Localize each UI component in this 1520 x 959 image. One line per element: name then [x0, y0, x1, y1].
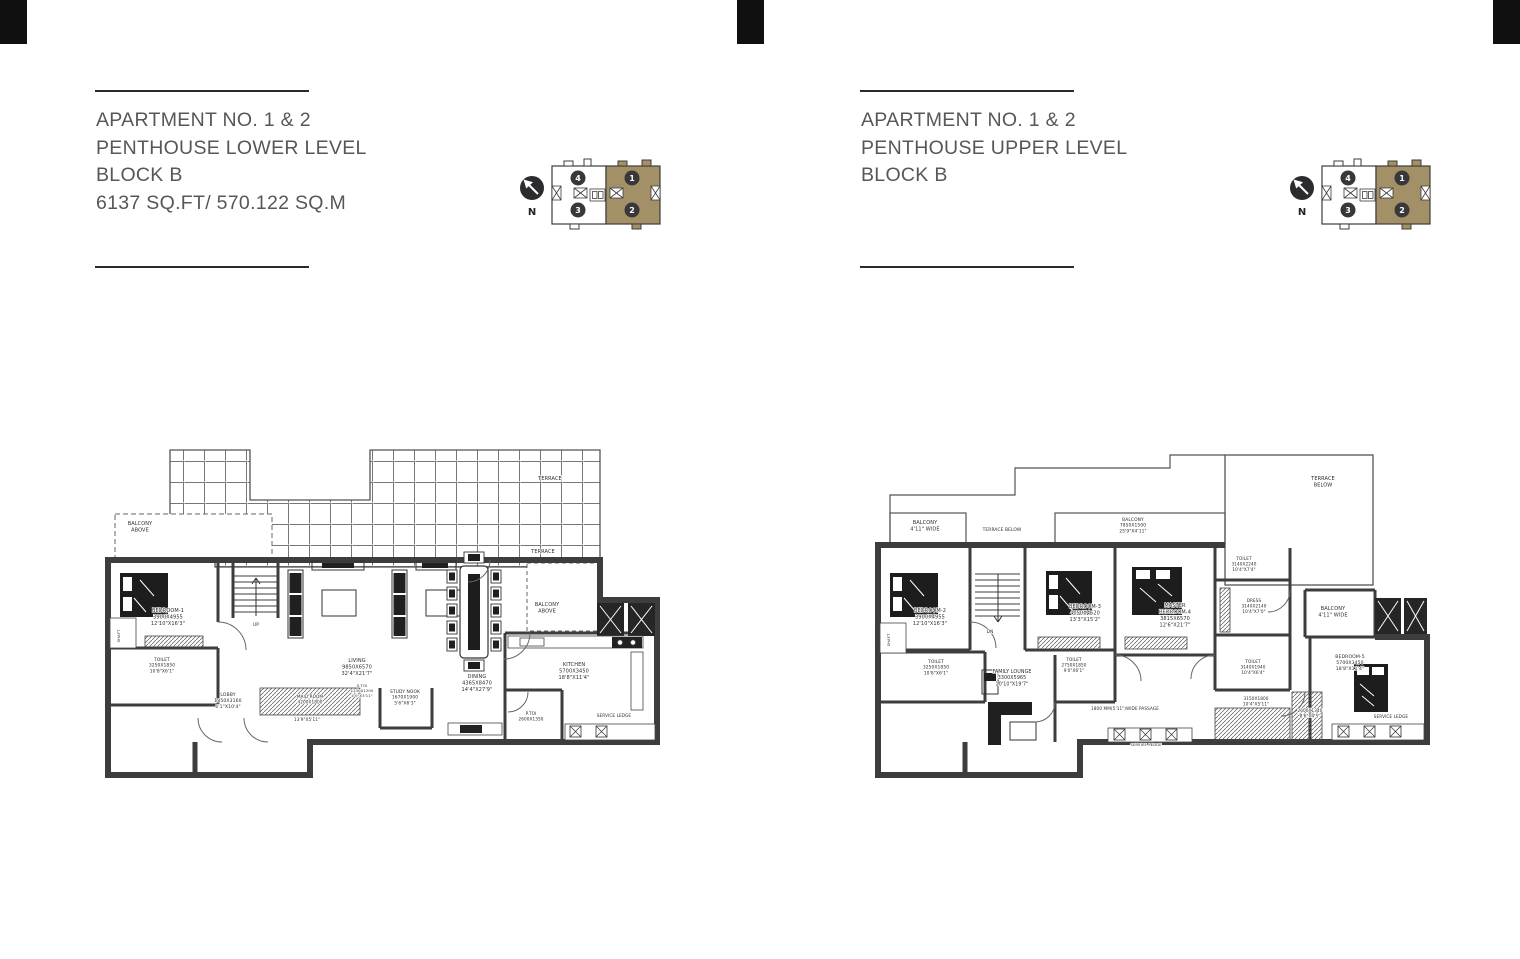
- roof-outline: [890, 455, 1225, 543]
- room-label: STUDY NOOK1670X19005'6"X6'3": [390, 689, 420, 706]
- room-label: BEDROOM-23900X495512'10"X16'3": [913, 608, 947, 627]
- room-label: SERVICE LEDGE: [1130, 742, 1162, 747]
- room-label: 2600X13408'6"X4'5": [1297, 708, 1322, 718]
- title-top-rule-left: [95, 90, 309, 92]
- title-block-upper-level: APARTMENT NO. 1 & 2 PENTHOUSE UPPER LEVE…: [861, 107, 1181, 190]
- keyplan-unit-number: 1: [1399, 174, 1405, 183]
- room-label: DRESS3140X214010'4"X7'0": [1241, 598, 1266, 614]
- room-label: SHAFT: [116, 629, 121, 642]
- room-label: BEDROOM-55700X345018'8"X11'4": [1335, 654, 1364, 672]
- title-line: PENTHOUSE LOWER LEVEL: [96, 135, 416, 163]
- title-bottom-rule-right: [860, 266, 1074, 268]
- room-label: SHAFT: [886, 633, 891, 646]
- key-plan-upper-level: N 4312: [1288, 148, 1438, 238]
- room-label: KITCHEN5700X345018'8"X11'4": [559, 662, 590, 681]
- room-label: SERVICE LEDGE: [1374, 714, 1409, 719]
- key-plan-lower-level: N 4312: [518, 148, 668, 238]
- north-label: N: [528, 207, 536, 218]
- title-block-lower-level: APARTMENT NO. 1 & 2 PENTHOUSE LOWER LEVE…: [96, 107, 416, 217]
- room-label: TOILET3250X185010'8"X6'1": [149, 657, 175, 674]
- lounge-sofa-icon: [982, 670, 1036, 745]
- room-label: 13'9"X5'11": [294, 717, 320, 722]
- stairs-icon: [975, 574, 1020, 622]
- room-label: TERRACE: [537, 476, 562, 482]
- room-label: UP: [253, 622, 259, 628]
- title-top-rule-right: [860, 90, 1074, 92]
- title-line: BLOCK B: [861, 162, 1181, 190]
- keyplan-unit-number: 3: [575, 206, 581, 215]
- keyplan-unit-number: 4: [1345, 174, 1351, 183]
- room-label: P.TOI2600X1350: [518, 711, 543, 721]
- room-label: FAMILY LOUNGE3300X596510'10"X19'7": [992, 669, 1031, 687]
- room-label: DN: [987, 629, 994, 635]
- room-label: LIVING9850X657032'4"X21'7": [342, 658, 373, 677]
- stairs-icon: [233, 576, 278, 616]
- keyplan-unit-number: 4: [575, 174, 581, 183]
- dining-table-icon: [447, 552, 501, 671]
- keyplan-building: 4312: [1322, 159, 1430, 229]
- room-label: BALCONY7850X150025'9"X4'11": [1119, 517, 1146, 534]
- north-label: N: [1298, 207, 1306, 218]
- title-line: APARTMENT NO. 1 & 2: [861, 107, 1181, 135]
- room-label: SERVICE LEDGE: [597, 713, 632, 718]
- page-edge-mark-left: [0, 0, 27, 44]
- north-compass: N: [520, 176, 544, 218]
- sofa-icons: [288, 561, 460, 638]
- room-label: TERRACE: [530, 549, 555, 555]
- room-label: TOILET3250X185010'8"X6'1": [923, 659, 949, 676]
- title-line: APARTMENT NO. 1 & 2: [96, 107, 416, 135]
- room-label: 1800 MM(5'11")WIDE PASSAGE: [1091, 706, 1159, 711]
- title-line: 6137 SQ.FT/ 570.122 SQ.M: [96, 190, 416, 218]
- keyplan-unit-number: 1: [629, 174, 635, 183]
- keyplan-unit-number: 3: [1345, 206, 1351, 215]
- balcony-above-outline-2: [527, 563, 598, 631]
- page-edge-mark-center: [737, 0, 764, 44]
- room-label: S.TOI1230X12004'0"X3'11": [351, 683, 374, 698]
- floor-plan-lower-level: TERRACETERRACEBALCONYABOVEBEDROOM-13900X…: [100, 440, 660, 780]
- room-label: 3150X180010'4"X5'11": [1243, 696, 1269, 706]
- north-compass: N: [1290, 176, 1314, 218]
- title-line: PENTHOUSE UPPER LEVEL: [861, 135, 1181, 163]
- title-line: BLOCK B: [96, 162, 416, 190]
- room-label: TERRACE BELOW: [982, 527, 1022, 533]
- service-ledge-icons: [565, 724, 655, 740]
- keyplan-unit-number: 2: [1399, 206, 1405, 215]
- keyplan-unit-number: 2: [629, 206, 635, 215]
- keyplan-building: 4312: [552, 159, 660, 229]
- room-label: MASTERBEDROOM-43815X657012'6"X21'7": [1159, 603, 1191, 629]
- room-label: TOILET3140X194010'4"X6'4": [1240, 659, 1265, 675]
- room-label: BEDROOM-13900X495512'10"X16'3": [151, 608, 185, 627]
- room-label: TOILET2750X18509'0"X6'1": [1061, 657, 1086, 673]
- room-label: BEDROOM-34050X462013'3"X15'2": [1069, 604, 1101, 623]
- page-edge-mark-right: [1493, 0, 1520, 44]
- brochure-spread: APARTMENT NO. 1 & 2 PENTHOUSE LOWER LEVE…: [0, 0, 1520, 959]
- floor-plan-upper-level: BALCONY4'11" WIDETERRACE BELOWBALCONY785…: [870, 440, 1430, 780]
- room-label: BALCONY4'11" WIDE: [1318, 606, 1347, 619]
- room-label: TERRACEBELOW: [1310, 476, 1335, 489]
- elevator-icons: [1375, 598, 1427, 634]
- room-label: MAID ROOM4200X1800: [297, 694, 324, 704]
- room-label: BALCONY4'11" WIDE: [910, 520, 939, 533]
- room-label: DINING4365X847014'4"X27'9": [462, 674, 493, 693]
- title-bottom-rule-left: [95, 266, 309, 268]
- elevator-icons: [597, 603, 655, 636]
